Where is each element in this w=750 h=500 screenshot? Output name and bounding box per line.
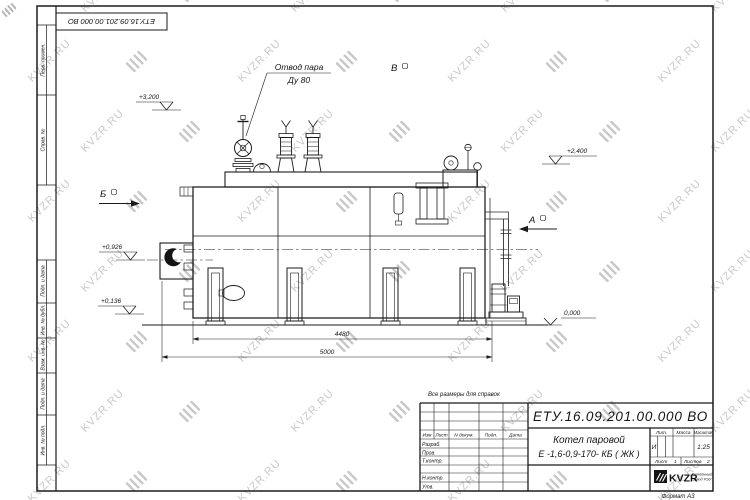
dimension-4480: 4480 [335,331,350,338]
view-arrow-v: В [391,63,408,74]
elevation-mark-2400: +2,400 [542,148,597,164]
product-name-line1: Котел паровой [553,435,625,446]
company-logo: KVZR Котельный завод РЭУ [654,470,713,485]
margin-label-podp-data-1: Подп. и дата [41,265,47,297]
company-tagline-line2: завод РЭУ [692,478,712,482]
downcomer-pipe [485,212,512,286]
elevation-label: +3,200 [139,94,159,101]
view-label-b: Б [100,189,106,200]
margin-label-inv-podl: Инв. № подл. [41,424,47,455]
sheets-label: Листов [683,459,702,465]
title-block: Все размеры для справок [420,392,714,500]
dimension-5000: 5000 [320,349,335,356]
row-tkontr: Т.контр. [422,459,443,465]
sheets-value: 2 [706,459,710,465]
sheet-label: Лист [654,459,667,465]
view-sheet-ref-box [403,64,408,69]
row-nkontr: Н.контр. [422,476,444,482]
drawing-sheet: KVZR.RUKVZR.RUKVZR.RUKVZR.RUKVZR.RUKVZR.… [0,0,750,500]
margin-label-perv-primen: Перв. примен. [41,43,47,76]
titleblock-doc-number: ЕТУ.16.09.201.00.000 ВО [533,409,708,424]
rotated-stamp-text: ЕТУ.16.09.201.00.000 ВО [68,17,155,26]
row-prov: Пров. [422,451,436,457]
col-podp: Подп. [485,433,498,439]
format-note: Формат А3 [662,494,695,500]
scale-label: Масштаб [693,430,714,435]
view-label-a: А [528,215,535,226]
elevation-mark-0136: +0,136 [98,298,144,314]
sheet-value: 1 [674,459,677,465]
elevation-mark-0926: +0,926 [99,244,145,260]
lit-value: И [652,444,657,451]
dome-fitting [254,164,271,173]
margin-label-podp-data-2: Подп. и дата [41,378,47,410]
view-arrow-b: Б [99,189,140,207]
elevation-label: +2,400 [567,148,587,155]
product-name-line2: Е -1,6-0,9-170- КБ ( ЖК ) [538,449,639,459]
feed-pump-unit [486,284,526,325]
callout-leader-line [246,73,267,136]
elevation-label: 0,000 [564,310,581,317]
burner-flame [164,248,181,266]
mass-label: Масса [676,430,691,436]
reference-note: Все размеры для справок [428,392,501,398]
margin-label-vzam-inv: Взам. инв. № [41,339,47,371]
row-utv: Утв. [422,485,434,491]
boiler-body [180,172,490,318]
safety-valve-1 [277,121,295,173]
col-data: Дата [508,433,522,439]
water-level-gauge [394,183,448,225]
drawing-canvas: Перв. примен. Справ. № Подп. и дата Инв.… [0,0,750,500]
margin-label-sprav-no: Справ. № [41,128,47,151]
steam-outlet-callout: Отвод пара Ду 80 [246,62,331,136]
view-sheet-ref-box [112,190,117,195]
col-izm: Изм [423,433,433,439]
burner-box [160,243,193,309]
safety-valve-2 [304,121,322,173]
margin-label-inv-dubl: Инв. № дубл. [41,305,47,336]
elevation-mark-0000: 0,000 [536,310,596,325]
scale-value: 1:25 [697,444,710,451]
view-sheet-ref-box [541,216,546,221]
view-arrow-a: А [519,215,557,232]
callout-line2: Ду 80 [287,75,310,85]
callout-line1: Отвод пара [275,62,324,72]
rotated-stamp-box: ЕТУ.16.09.201.00.000 ВО [56,13,167,30]
elevation-label: +0,926 [102,244,122,251]
row-razrab: Разраб. [422,442,441,448]
col-ndokum: N докум. [454,433,473,439]
view-label-v: В [391,63,398,74]
lit-label: Лит. [655,430,667,436]
support-legs [206,268,477,325]
fan-assembly [443,144,481,187]
boiler-drawing: Отвод пара Ду 80 +3,200 +2,400 +0,926 [98,62,597,362]
company-tagline-line1: Котельный [692,473,714,477]
elevation-mark-3200: +3,200 [136,94,181,110]
col-list: Лист [434,433,447,439]
elevation-label: +0,136 [101,298,121,305]
